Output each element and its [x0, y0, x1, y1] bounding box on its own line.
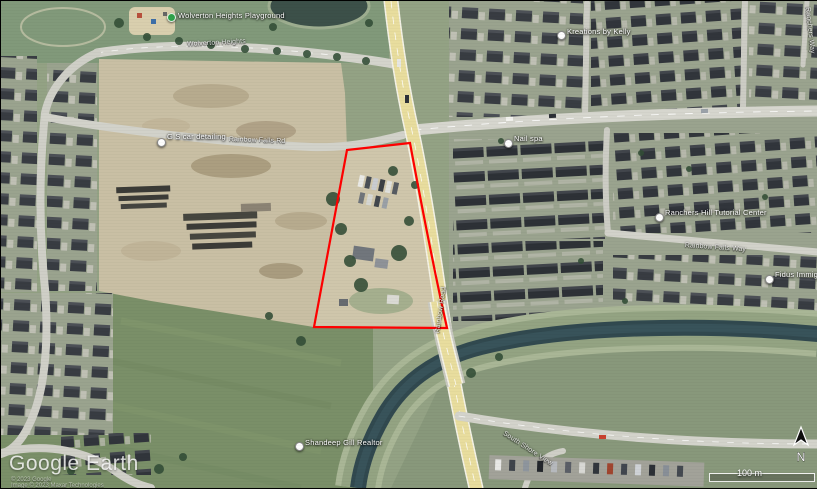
google-earth-watermark: Google Earth: [9, 452, 139, 476]
north-compass[interactable]: N: [787, 425, 815, 467]
google-earth-satellite-view[interactable]: Wolverton Heights Playground Kreations b…: [0, 0, 817, 489]
kreations-marker-icon[interactable]: [557, 31, 566, 40]
fidus-marker-icon[interactable]: [765, 275, 774, 284]
tutorial-marker-icon[interactable]: [655, 213, 664, 222]
car-detailing-marker-icon[interactable]: [157, 138, 166, 147]
poi-label-fidus[interactable]: Fidus Immigra: [775, 271, 817, 279]
realtor-marker-icon[interactable]: [295, 442, 304, 451]
poi-label-car-detailing[interactable]: G S car detailing: [167, 133, 226, 141]
scale-bar-label: 100 m: [737, 468, 762, 478]
playground-marker-icon[interactable]: [167, 13, 176, 22]
poi-label-kreations[interactable]: Kreations by Kelly: [567, 28, 631, 36]
poi-label-playground[interactable]: Wolverton Heights Playground: [178, 12, 285, 20]
poi-label-nail-spa[interactable]: Nail spa: [514, 135, 543, 143]
north-arrow-icon: [794, 427, 808, 445]
compass-n-label: N: [797, 450, 806, 464]
poi-label-realtor[interactable]: Shandeep Gill Realtor: [305, 439, 383, 447]
poi-label-tutorial[interactable]: Ranchers Hill Tutorial Center: [665, 209, 767, 217]
nail-spa-marker-icon[interactable]: [504, 139, 513, 148]
copyright-line-2: Image © 2023 Maxar Technologies: [11, 483, 104, 489]
